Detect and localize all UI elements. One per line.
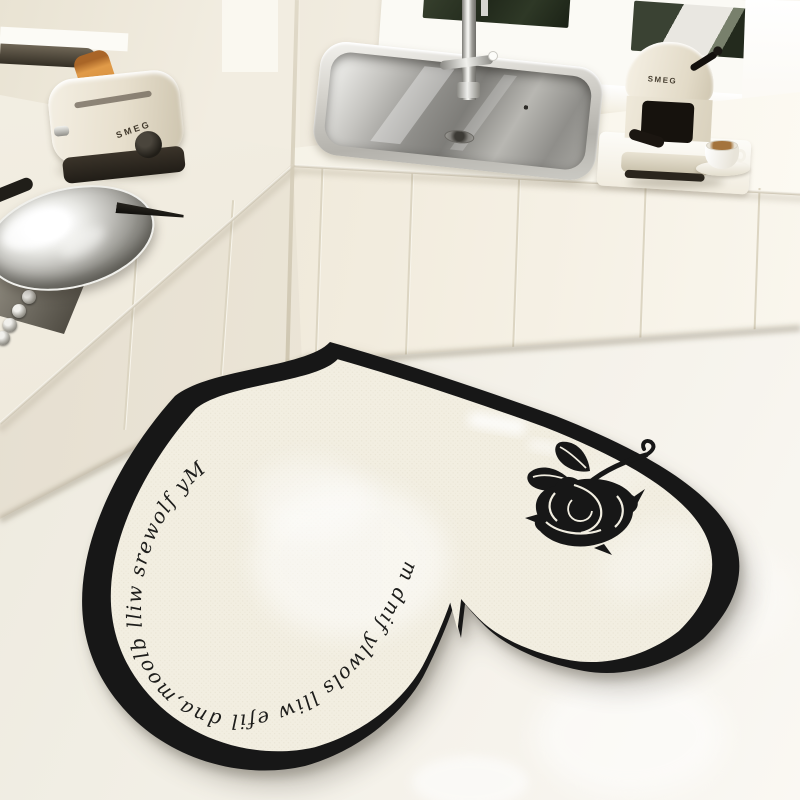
heart-mat: My flowers will bloom,and life will slow…	[0, 0, 800, 800]
kitchen-scene: SMEG SMEG	[0, 0, 800, 800]
